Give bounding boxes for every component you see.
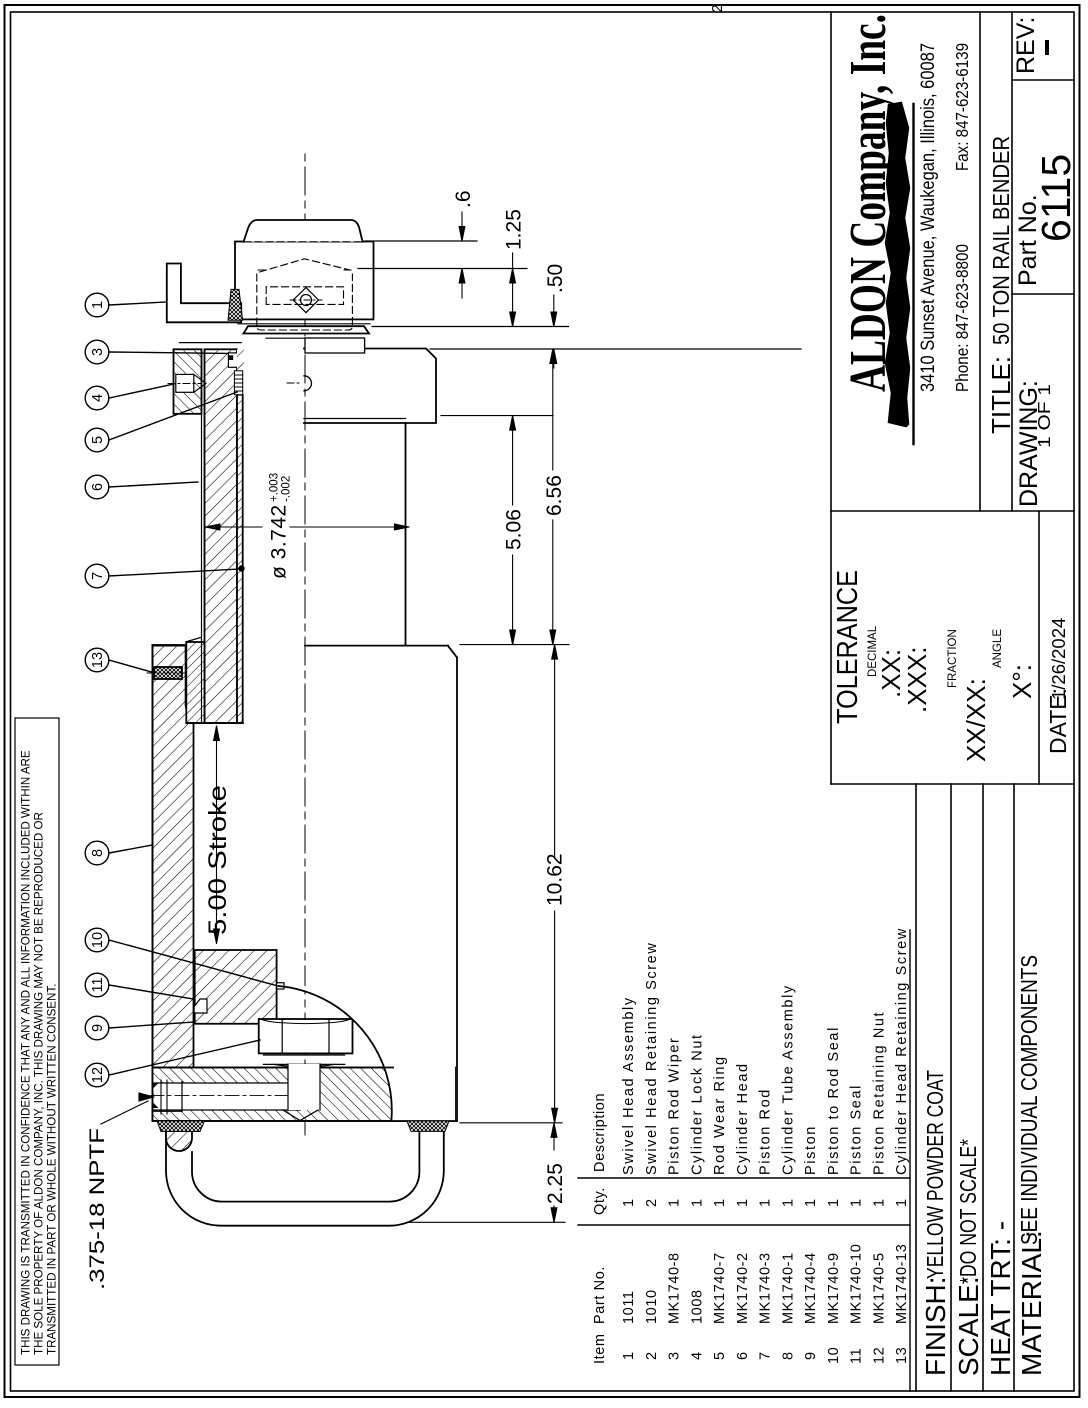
svg-text:9: 9: [803, 1351, 819, 1360]
svg-text:Part No.: Part No.: [592, 1266, 608, 1324]
svg-text:Fax: 847-623-6139: Fax: 847-623-6139: [952, 43, 972, 171]
svg-text:MK1740-9: MK1740-9: [826, 1252, 842, 1324]
svg-text:FRACTION: FRACTION: [947, 629, 959, 688]
svg-text:5: 5: [90, 436, 106, 444]
svg-text:13: 13: [894, 1347, 910, 1364]
svg-text:Cylinder Head: Cylinder Head: [735, 1062, 751, 1175]
svg-text:6: 6: [90, 483, 106, 491]
svg-text:1: 1: [621, 1198, 637, 1207]
svg-text:+.003: +.003: [269, 473, 281, 502]
svg-text:5: 5: [712, 1351, 728, 1360]
svg-text:10: 10: [90, 932, 106, 948]
svg-text:7: 7: [90, 572, 106, 580]
svg-text:Description: Description: [592, 1093, 608, 1172]
svg-text:MATERIAL:: MATERIAL:: [1016, 1230, 1047, 1376]
svg-text:7: 7: [758, 1351, 774, 1360]
svg-text:1: 1: [667, 1198, 683, 1207]
svg-text:*DO NOT SCALE*: *DO NOT SCALE*: [955, 1139, 981, 1284]
svg-text:11: 11: [849, 1348, 865, 1364]
svg-text:1: 1: [826, 1198, 842, 1207]
svg-text:HEAT TRT: -: HEAT TRT: -: [985, 1221, 1016, 1376]
svg-text:MK1740-5: MK1740-5: [871, 1252, 887, 1324]
svg-text:YELLOW POWDER COAT: YELLOW POWDER COAT: [922, 1070, 948, 1279]
svg-text:TITLE:: TITLE:: [986, 356, 1016, 434]
svg-text:FINISH:: FINISH:: [920, 1276, 951, 1376]
svg-text:-.002: -.002: [281, 476, 293, 502]
svg-text:1.25: 1.25: [503, 209, 526, 250]
svg-text:1/26/2024: 1/26/2024: [1048, 618, 1069, 700]
svg-text:1: 1: [758, 1198, 774, 1207]
svg-text:Piston Rod Wiper: Piston Rod Wiper: [667, 1037, 683, 1175]
svg-text:1011: 1011: [621, 1290, 637, 1324]
svg-text:8: 8: [780, 1351, 796, 1360]
svg-text:Piston Retaining Nut: Piston Retaining Nut: [871, 1011, 887, 1175]
svg-text:9: 9: [90, 1024, 106, 1032]
svg-text:1: 1: [712, 1198, 728, 1207]
svg-text:1008: 1008: [689, 1289, 705, 1324]
svg-text:MK1740-1: MK1740-1: [780, 1252, 796, 1324]
svg-text:SCALE:: SCALE:: [953, 1276, 984, 1376]
svg-text:1: 1: [894, 1198, 910, 1207]
svg-text:1: 1: [621, 1351, 637, 1360]
svg-text:Cylinder Lock Nut: Cylinder Lock Nut: [689, 1033, 705, 1175]
svg-text:ø 3.742: ø 3.742: [268, 504, 291, 579]
svg-text:Rod Wear Ring: Rod Wear Ring: [712, 1055, 728, 1175]
svg-text:1 OF 1: 1 OF 1: [1034, 384, 1054, 448]
svg-text:Piston Seal: Piston Seal: [849, 1084, 865, 1175]
svg-text:MK1740-3: MK1740-3: [758, 1252, 774, 1324]
svg-text:.XXX:: .XXX:: [902, 647, 932, 713]
svg-text:2: 2: [644, 1198, 660, 1207]
svg-text:THIS DRAWING IS TRANSMITTED IN: THIS DRAWING IS TRANSMITTED IN CONFIDENC…: [20, 750, 33, 1355]
svg-text:Cylinder Tube Assembly: Cylinder Tube Assembly: [780, 984, 796, 1175]
svg-text:4: 4: [90, 394, 106, 402]
svg-text:8: 8: [90, 849, 106, 857]
svg-text:3: 3: [667, 1351, 683, 1360]
svg-text:1: 1: [689, 1198, 705, 1207]
svg-text:5.00 Stroke: 5.00 Stroke: [204, 785, 232, 935]
svg-text:1: 1: [849, 1198, 865, 1207]
svg-text:1010: 1010: [644, 1289, 660, 1324]
svg-text:.6: .6: [452, 190, 475, 208]
svg-text:TOLERANCE: TOLERANCE: [832, 570, 864, 724]
svg-text:3410 Sunset Avenue, Waukegan,: 3410 Sunset Avenue, Waukegan, Illinois, …: [917, 43, 939, 392]
svg-text:MK1740-4: MK1740-4: [803, 1252, 819, 1324]
svg-text:MK1740-7: MK1740-7: [712, 1252, 728, 1324]
svg-text:Qty.: Qty.: [592, 1187, 608, 1215]
svg-text:2: 2: [710, 4, 726, 12]
svg-text:SEE INDIVIDUAL COMPONENTS: SEE INDIVIDUAL COMPONENTS: [1016, 955, 1042, 1245]
svg-text:12: 12: [90, 1067, 106, 1083]
svg-text:6: 6: [735, 1351, 751, 1360]
svg-text:10: 10: [826, 1347, 842, 1364]
svg-text:1: 1: [780, 1198, 796, 1207]
svg-text:Phone: 847-623-8800: Phone: 847-623-8800: [952, 244, 972, 392]
svg-text:1: 1: [735, 1198, 751, 1207]
svg-text:Piston to Rod Seal: Piston to Rod Seal: [826, 1026, 842, 1175]
svg-text:1: 1: [803, 1198, 819, 1207]
svg-text:11: 11: [90, 977, 106, 992]
svg-text:MK1740-8: MK1740-8: [667, 1252, 683, 1324]
svg-text:13: 13: [90, 652, 106, 668]
svg-text:Swivel Head Assembly: Swivel Head Assembly: [621, 996, 637, 1175]
svg-text:Piston Rod: Piston Rod: [758, 1088, 774, 1175]
svg-text:Cylinder Head Retaining Screw: Cylinder Head Retaining Screw: [894, 927, 910, 1175]
svg-text:Piston: Piston: [803, 1125, 819, 1175]
svg-text:5.06: 5.06: [503, 509, 526, 550]
svg-text:6.56: 6.56: [543, 475, 566, 516]
svg-text:4: 4: [689, 1351, 705, 1360]
svg-text:REV:: REV:: [1012, 17, 1040, 74]
svg-text:Item: Item: [592, 1333, 608, 1364]
svg-text:TRANSMITTED IN PART OR WHOLE W: TRANSMITTED IN PART OR WHOLE WITHOUT WRI…: [46, 984, 59, 1355]
svg-text:Swivel Head Retaining Screw: Swivel Head Retaining Screw: [644, 942, 660, 1175]
svg-text:.50: .50: [544, 264, 567, 293]
svg-text:MK1740-2: MK1740-2: [735, 1252, 751, 1324]
svg-text:THE SOLE PROPERTY OF ALDON COM: THE SOLE PROPERTY OF ALDON COMPANY, INC.…: [33, 812, 46, 1355]
svg-text:10.62: 10.62: [544, 853, 567, 906]
svg-text:.375-18 NPTF: .375-18 NPTF: [86, 1128, 109, 1290]
svg-text:12: 12: [871, 1347, 887, 1364]
svg-text:MK1740-13: MK1740-13: [894, 1244, 910, 1324]
svg-text:MK1740-10: MK1740-10: [849, 1244, 865, 1324]
svg-text:XX/XX:: XX/XX:: [961, 678, 991, 762]
svg-text:6115: 6115: [1033, 154, 1079, 242]
svg-text:3: 3: [90, 348, 106, 356]
svg-text:ANGLE: ANGLE: [992, 629, 1004, 668]
svg-text:50 TON RAIL BENDER: 50 TON RAIL BENDER: [988, 136, 1014, 345]
svg-text:1: 1: [90, 301, 106, 309]
svg-text:2.25: 2.25: [544, 1163, 567, 1204]
svg-text:2: 2: [644, 1351, 660, 1360]
svg-text:X°:: X°:: [1007, 664, 1037, 699]
svg-text:1: 1: [871, 1198, 887, 1207]
